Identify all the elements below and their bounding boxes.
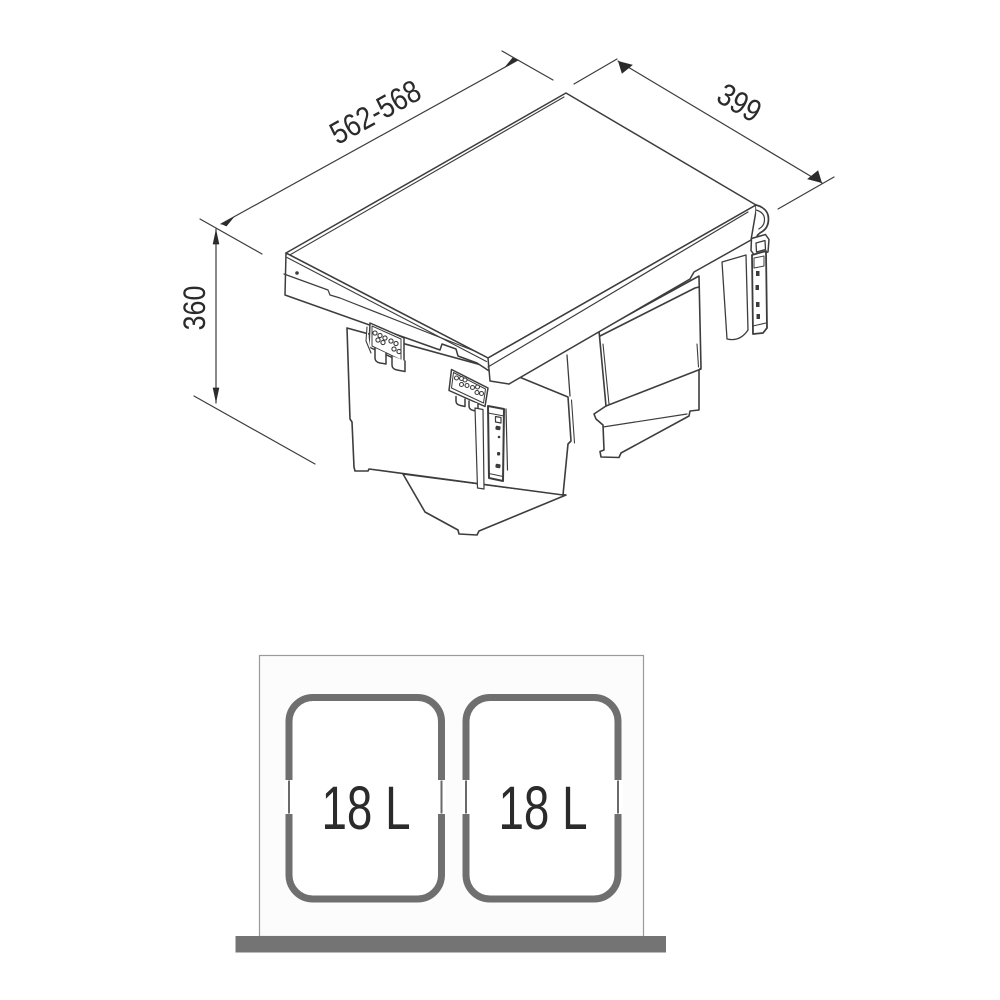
svg-text:18 L: 18 L	[321, 775, 410, 843]
svg-text:18 L: 18 L	[498, 775, 587, 843]
svg-text:360: 360	[178, 286, 212, 331]
